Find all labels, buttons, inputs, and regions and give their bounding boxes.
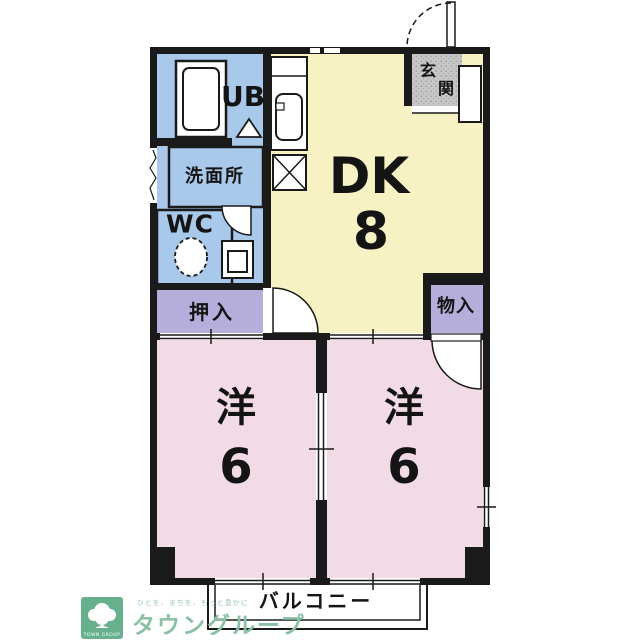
entrance-door-swing <box>407 3 451 47</box>
entrance-door-leaf <box>447 2 455 47</box>
storage-label: 物入 <box>437 298 475 316</box>
entrance-label-1: 玄 <box>420 63 436 79</box>
dk-label: DK <box>329 151 409 201</box>
bedroom-left-label: 洋 <box>216 388 256 428</box>
dk-size-label: 8 <box>353 206 389 258</box>
bedroom-right-label: 洋 <box>384 388 424 428</box>
town-group-logo: TOWN GROUP <box>81 597 123 639</box>
bedroom-left-size: 6 <box>219 443 252 491</box>
toilet <box>175 238 207 276</box>
entrance-label-2: 関 <box>438 81 454 97</box>
wc-label: WC <box>166 212 214 237</box>
washroom-label: 洗面所 <box>185 168 245 186</box>
closet-label: 押入 <box>189 302 235 322</box>
bedroom-right-size: 6 <box>387 443 420 491</box>
unit-bath-label: UB <box>221 83 265 111</box>
floorplan-page: UB 洗面所 WC DK 8 玄 関 押入 物入 洋 6 洋 6 バルコニー T… <box>0 0 640 640</box>
kitchen-sink <box>276 94 302 140</box>
logo-caption: TOWN GROUP <box>84 633 121 638</box>
shoe-cabinet <box>459 66 481 122</box>
floorplan-drawing <box>0 0 640 640</box>
entrance-step <box>412 106 462 113</box>
brand-name: タウングループ <box>132 606 306 640</box>
